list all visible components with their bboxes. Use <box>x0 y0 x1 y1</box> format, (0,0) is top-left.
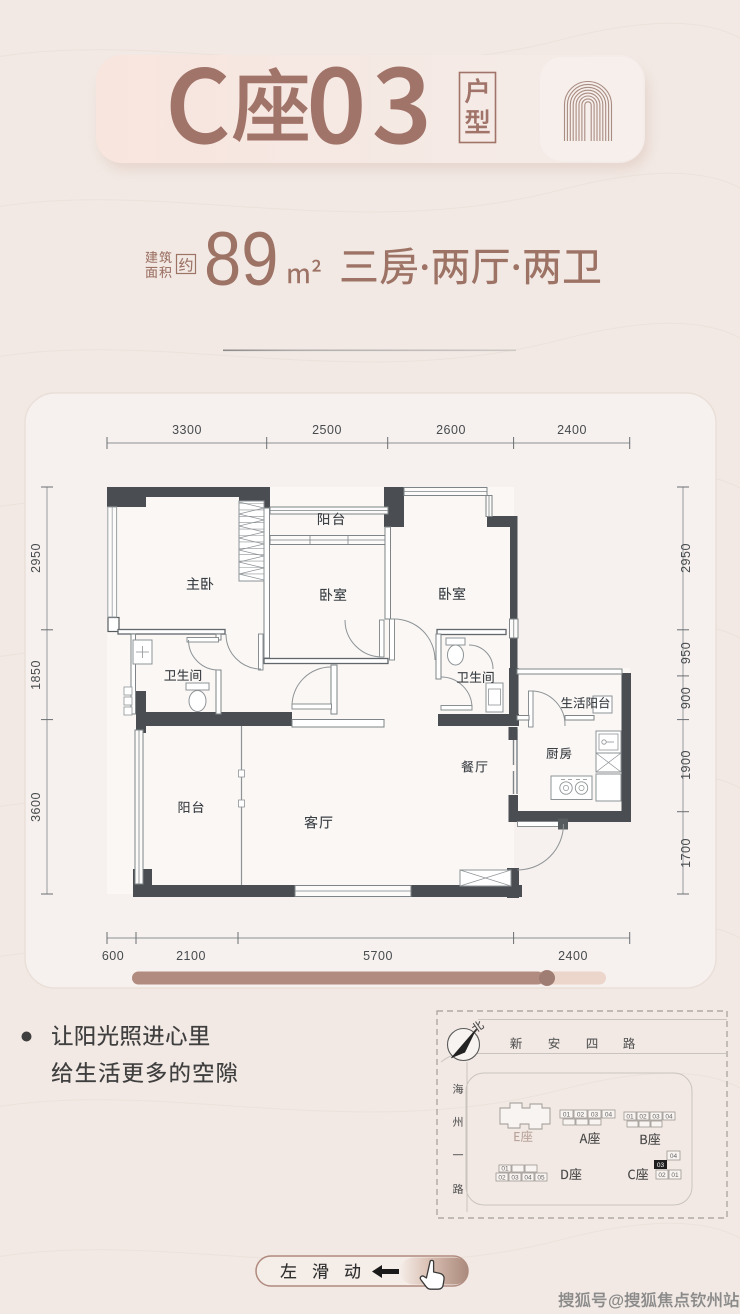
svg-text:03: 03 <box>652 1114 660 1121</box>
svg-text:2100: 2100 <box>176 949 206 963</box>
svg-text:03: 03 <box>657 1162 665 1169</box>
svg-text:03: 03 <box>511 1175 519 1182</box>
svg-text:01: 01 <box>671 1172 679 1179</box>
svg-text:2500: 2500 <box>312 423 342 437</box>
svg-text:1900: 1900 <box>679 750 693 780</box>
svg-text:600: 600 <box>102 949 124 963</box>
svg-text:04: 04 <box>524 1175 532 1182</box>
svg-text:04: 04 <box>605 1112 613 1119</box>
svg-text:2950: 2950 <box>29 543 43 573</box>
svg-text:1850: 1850 <box>29 660 43 690</box>
svg-text:02: 02 <box>658 1172 666 1179</box>
svg-text:01: 01 <box>563 1112 571 1119</box>
svg-text:01: 01 <box>626 1114 634 1121</box>
svg-text:3300: 3300 <box>172 423 202 437</box>
svg-text:05: 05 <box>537 1175 545 1182</box>
svg-text:03: 03 <box>591 1112 599 1119</box>
svg-text:2600: 2600 <box>436 423 466 437</box>
svg-text:2950: 2950 <box>679 543 693 573</box>
svg-text:89: 89 <box>204 217 278 302</box>
svg-text:04: 04 <box>670 1153 678 1160</box>
svg-text:02: 02 <box>577 1112 585 1119</box>
svg-text:5700: 5700 <box>363 949 393 963</box>
svg-text:01: 01 <box>501 1166 509 1173</box>
svg-text:04: 04 <box>665 1114 673 1121</box>
svg-text:3600: 3600 <box>29 792 43 822</box>
svg-text:2400: 2400 <box>558 949 588 963</box>
svg-text:02: 02 <box>639 1114 647 1121</box>
svg-text:@: @ <box>608 1292 624 1310</box>
svg-text:900: 900 <box>679 687 693 709</box>
svg-text:1700: 1700 <box>679 838 693 868</box>
svg-text:2400: 2400 <box>557 423 587 437</box>
svg-text:02: 02 <box>498 1175 506 1182</box>
svg-text:950: 950 <box>679 642 693 664</box>
